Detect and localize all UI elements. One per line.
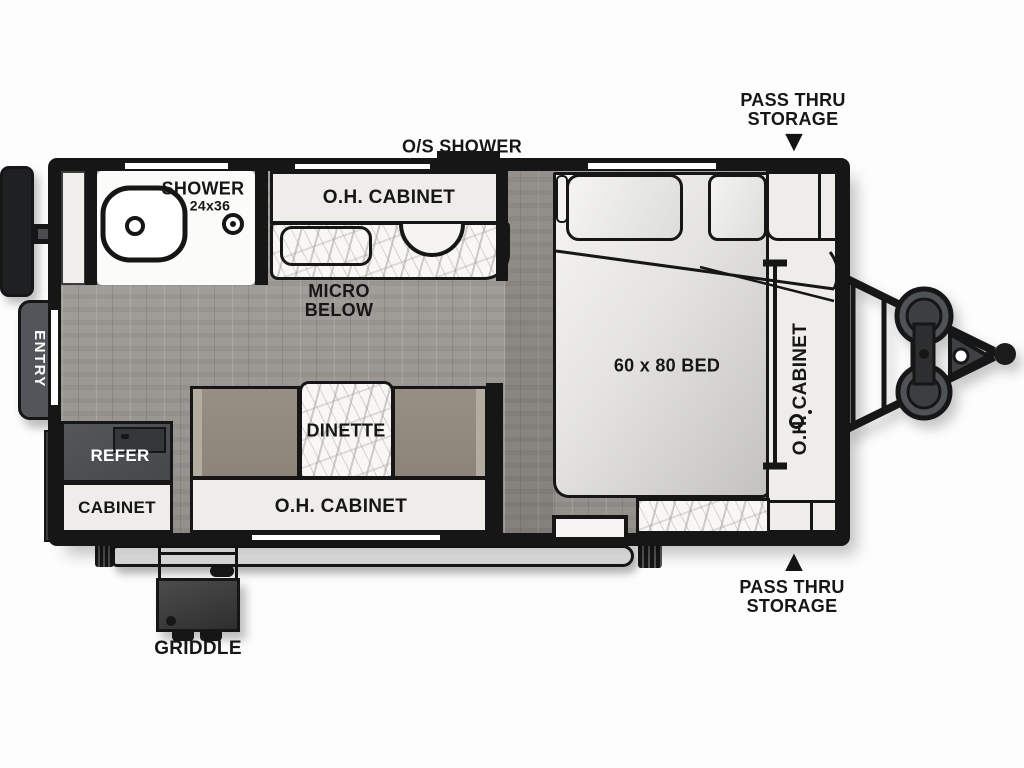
arrow-up-icon: ▲ (779, 547, 809, 577)
sink-icon (401, 224, 463, 255)
pass-thru-bottom-label: PASS THRU STORAGE (739, 578, 844, 616)
entry-label: ENTRY (31, 330, 47, 388)
os-shower-label: O/S SHOWER (402, 138, 522, 157)
micro-below-label: MICRO BELOW (305, 282, 374, 320)
shower-size-label: 24x36 (190, 199, 230, 214)
griddle-label: GRIDDLE (154, 639, 242, 659)
coupler-icon (994, 343, 1016, 365)
shower-label: SHOWER (162, 180, 245, 199)
trailer-tongue (845, 278, 1016, 430)
drain-icon (224, 215, 242, 233)
shower-pan-icon (103, 188, 185, 260)
bed-label: 60 x 80 BED (614, 357, 720, 376)
refer-label: REFER (90, 447, 149, 465)
cabinet-label: CABINET (78, 499, 156, 517)
dinette-label: DINETTE (306, 422, 385, 441)
floorplan-canvas: PASS THRU STORAGE ▼ ▲ PASS THRU STORAGE … (0, 0, 1024, 768)
kitchen-oh-cabinet-label: O.H. CABINET (323, 188, 455, 208)
bottom-oh-cabinet-label: O.H. CABINET (275, 497, 407, 517)
bed-rail (763, 263, 787, 467)
arrow-down-icon: ▼ (779, 127, 809, 157)
right-oh-cabinet-label: O.H. CABINET (791, 323, 811, 455)
bed-blanket-lines (556, 251, 838, 301)
pass-thru-top-label: PASS THRU STORAGE (740, 91, 845, 129)
